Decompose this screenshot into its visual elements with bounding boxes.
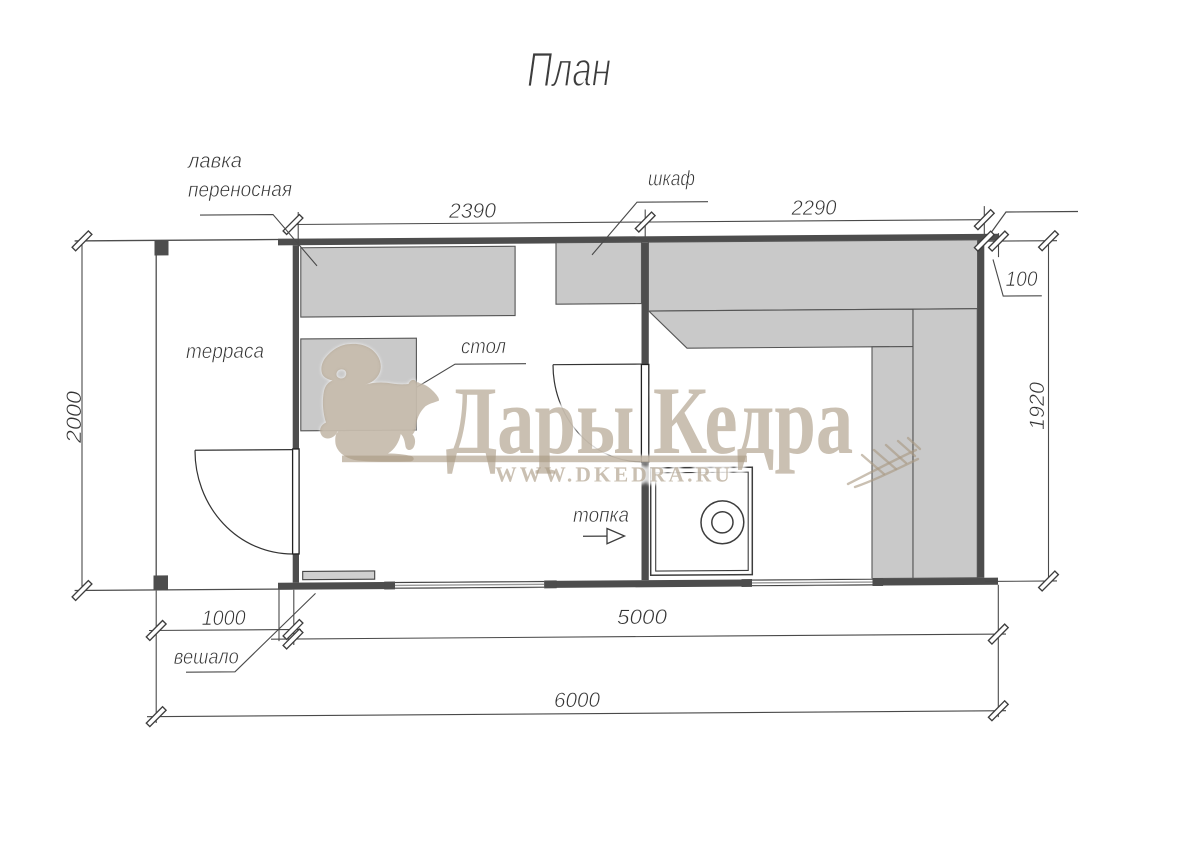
svg-text:Дары Кедра: Дары Кедра bbox=[446, 367, 853, 474]
svg-text:WWW.DKEDRA.RU: WWW.DKEDRA.RU bbox=[495, 463, 733, 487]
svg-text:топка: топка bbox=[573, 504, 629, 527]
svg-text:1920: 1920 bbox=[1026, 382, 1049, 430]
svg-text:переносная: переносная bbox=[188, 178, 292, 202]
svg-text:6000: 6000 bbox=[554, 689, 600, 712]
svg-text:5000: 5000 bbox=[617, 606, 667, 629]
svg-text:шкаф: шкаф bbox=[648, 167, 695, 190]
svg-text:2000: 2000 bbox=[63, 391, 86, 445]
svg-text:2290: 2290 bbox=[791, 197, 837, 220]
svg-text:1000: 1000 bbox=[202, 607, 246, 630]
svg-text:План: План bbox=[527, 43, 611, 98]
svg-text:терраса: терраса bbox=[186, 340, 264, 364]
svg-text:стол: стол bbox=[461, 335, 506, 358]
svg-text:2390: 2390 bbox=[448, 200, 496, 223]
svg-text:вешало: вешало bbox=[174, 645, 239, 668]
svg-text:100: 100 bbox=[1006, 268, 1038, 291]
svg-text:лавка: лавка bbox=[187, 149, 242, 172]
